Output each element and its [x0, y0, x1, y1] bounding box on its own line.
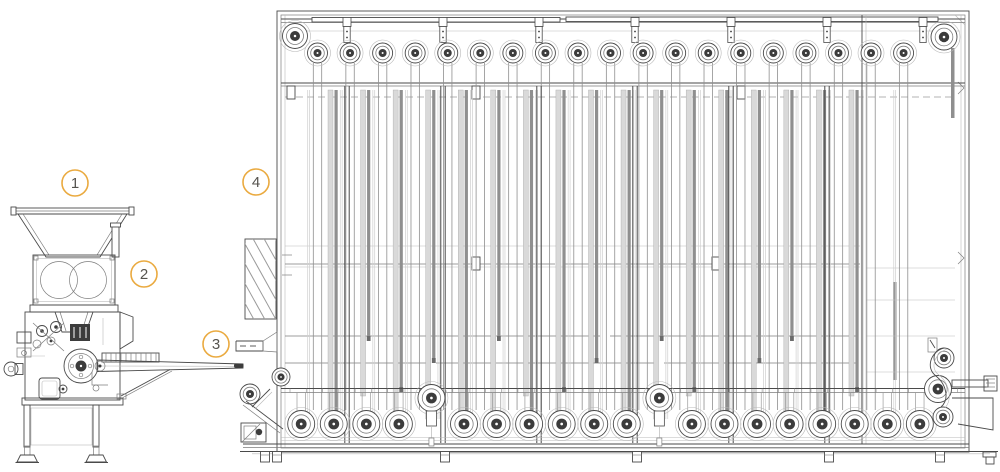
bottom-pulley-row — [285, 382, 937, 447]
dividing-drum — [64, 349, 98, 383]
svg-text:1: 1 — [71, 175, 79, 192]
mid-rails — [285, 86, 860, 363]
callout-2: 2 — [131, 261, 157, 287]
callout-1: 1 — [62, 170, 88, 196]
svg-text:2: 2 — [140, 266, 148, 283]
callout-4: 4 — [243, 169, 269, 195]
top-pulley-row — [280, 21, 961, 67]
callouts: 1 2 3 4 — [62, 169, 269, 357]
swing-tray-columns — [308, 63, 908, 419]
divider-body — [17, 312, 133, 400]
callout-3: 3 — [203, 331, 229, 357]
proofer-cabinet — [185, 11, 998, 464]
svg-text:4: 4 — [252, 174, 260, 191]
machine-diagram: 1 2 3 4 — [0, 0, 1000, 472]
hopper — [11, 207, 134, 257]
divider-head — [33, 255, 115, 305]
outfeed-conveyor — [92, 353, 244, 399]
machine-base — [16, 398, 124, 463]
side-handwheel — [4, 362, 23, 376]
svg-text:3: 3 — [212, 336, 220, 353]
hatched-panel — [185, 235, 334, 325]
cabinet-feet — [261, 452, 945, 463]
